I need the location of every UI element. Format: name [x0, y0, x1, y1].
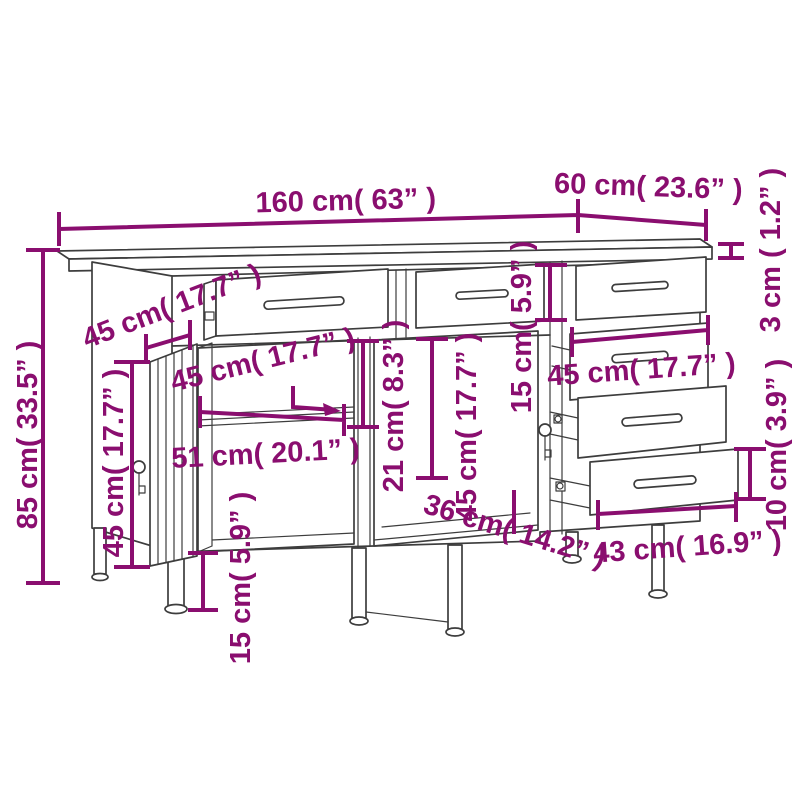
dim-height-85: 85 cm( 33.5” )	[12, 250, 60, 583]
dim-upper-compartment-height-21: 21 cm( 8.3” )	[347, 320, 410, 492]
dim-label-door-height: 45 cm( 17.7” )	[98, 369, 130, 558]
dim-label-inner-width: 51 cm( 20.1” )	[171, 433, 361, 475]
key-ring	[539, 424, 551, 436]
diagram-canvas: 160 cm( 63” ) 60 cm( 23.6” ) 3 cm ( 1.2”…	[0, 0, 800, 800]
leg-stretcher	[366, 612, 448, 622]
leg-foot	[165, 605, 187, 614]
dim-label-middle-compartment-height: 45 cm( 17.7” )	[451, 333, 483, 522]
dim-label-drawer-front-height: 10 cm( 3.9” )	[761, 359, 793, 531]
dimension-line	[416, 339, 448, 478]
dim-label-depth: 60 cm( 23.6” )	[554, 168, 744, 207]
dim-depth-60: 60 cm( 23.6” )	[554, 168, 744, 241]
top-drawer-row	[204, 257, 706, 340]
dimension-bracket	[718, 244, 744, 258]
dimension-line	[188, 553, 218, 610]
dimension-diagram: 160 cm( 63” ) 60 cm( 23.6” ) 3 cm ( 1.2”…	[0, 0, 800, 800]
leg-foot	[92, 574, 108, 581]
key-ring	[133, 461, 145, 473]
dim-label-top-drawer-height: 15 cm( 5.9” )	[506, 241, 538, 413]
leg	[352, 548, 366, 618]
dim-drawer-front-height-10: 10 cm( 3.9” )	[734, 359, 793, 531]
leg	[448, 545, 462, 629]
dim-label-top-thickness: 3 cm ( 1.2” )	[755, 168, 787, 332]
arrowhead	[323, 403, 341, 416]
leg-foot	[446, 628, 464, 636]
dim-middle-compartment-height-45: 45 cm( 17.7” )	[416, 333, 483, 522]
dim-label-width: 160 cm( 63” )	[255, 183, 436, 220]
leg-foot	[350, 617, 368, 625]
dimension-line	[200, 396, 344, 436]
dim-label-upper-compartment-height: 21 cm( 8.3” )	[378, 320, 410, 492]
dim-label-leg-height: 15 cm( 5.9” )	[225, 492, 257, 664]
dimension-line	[578, 209, 706, 241]
cabinet-key	[539, 424, 551, 460]
leg-foot	[649, 590, 667, 598]
dim-label-height: 85 cm( 33.5” )	[12, 341, 44, 530]
dim-width-160: 160 cm( 63” )	[59, 183, 578, 246]
dim-label-drawer-length: 43 cm( 16.9” )	[592, 524, 782, 569]
